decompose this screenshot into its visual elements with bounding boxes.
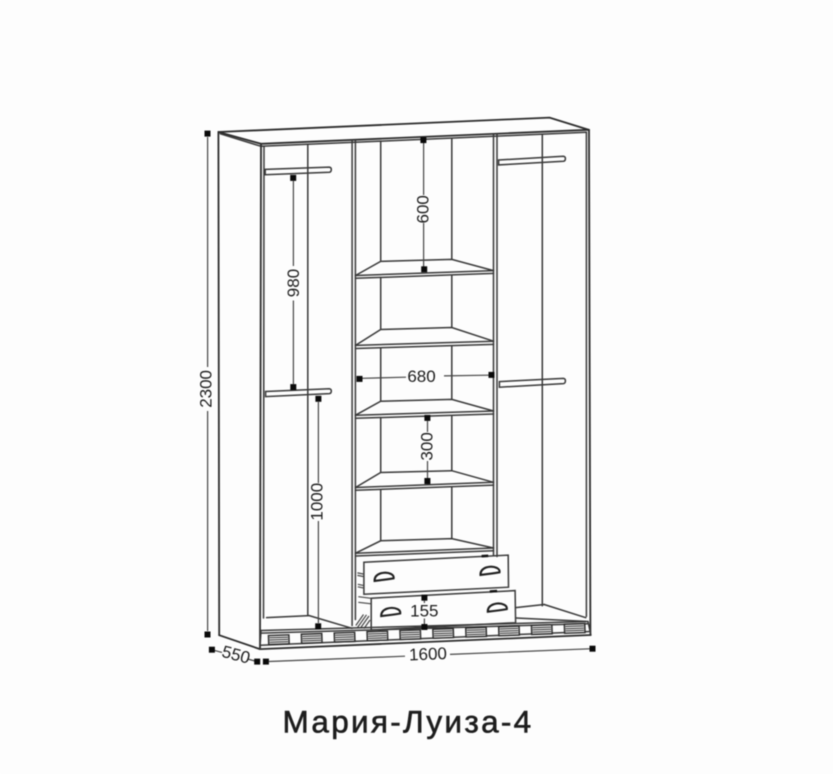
svg-text:300: 300: [418, 432, 437, 460]
svg-text:2300: 2300: [197, 370, 216, 408]
svg-text:980: 980: [284, 269, 303, 297]
svg-text:680: 680: [407, 367, 435, 386]
svg-text:600: 600: [414, 195, 433, 223]
svg-text:Мария-Луиза-4: Мария-Луиза-4: [282, 704, 533, 740]
svg-text:1600: 1600: [409, 644, 448, 665]
svg-text:1000: 1000: [308, 483, 327, 521]
svg-text:155: 155: [410, 602, 438, 621]
